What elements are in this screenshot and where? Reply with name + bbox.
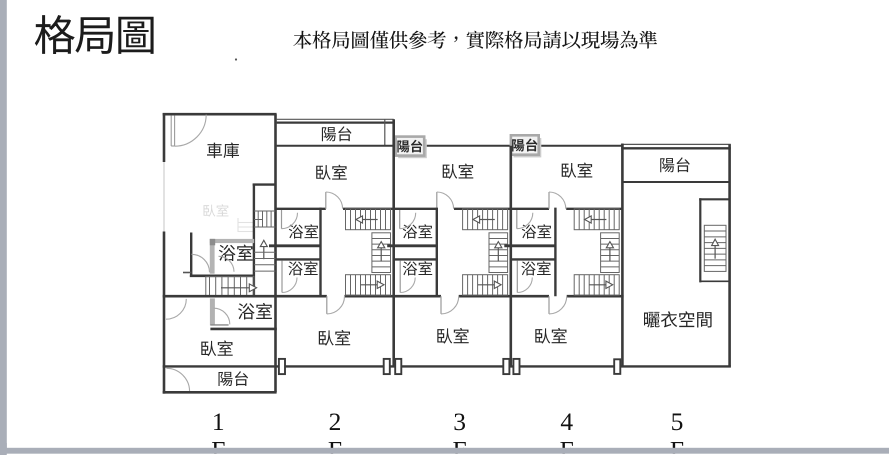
svg-text:5: 5 xyxy=(671,407,684,436)
svg-text:1: 1 xyxy=(212,407,225,436)
svg-text:2: 2 xyxy=(329,407,342,436)
svg-text:3: 3 xyxy=(453,407,466,436)
svg-text:4: 4 xyxy=(560,407,573,436)
